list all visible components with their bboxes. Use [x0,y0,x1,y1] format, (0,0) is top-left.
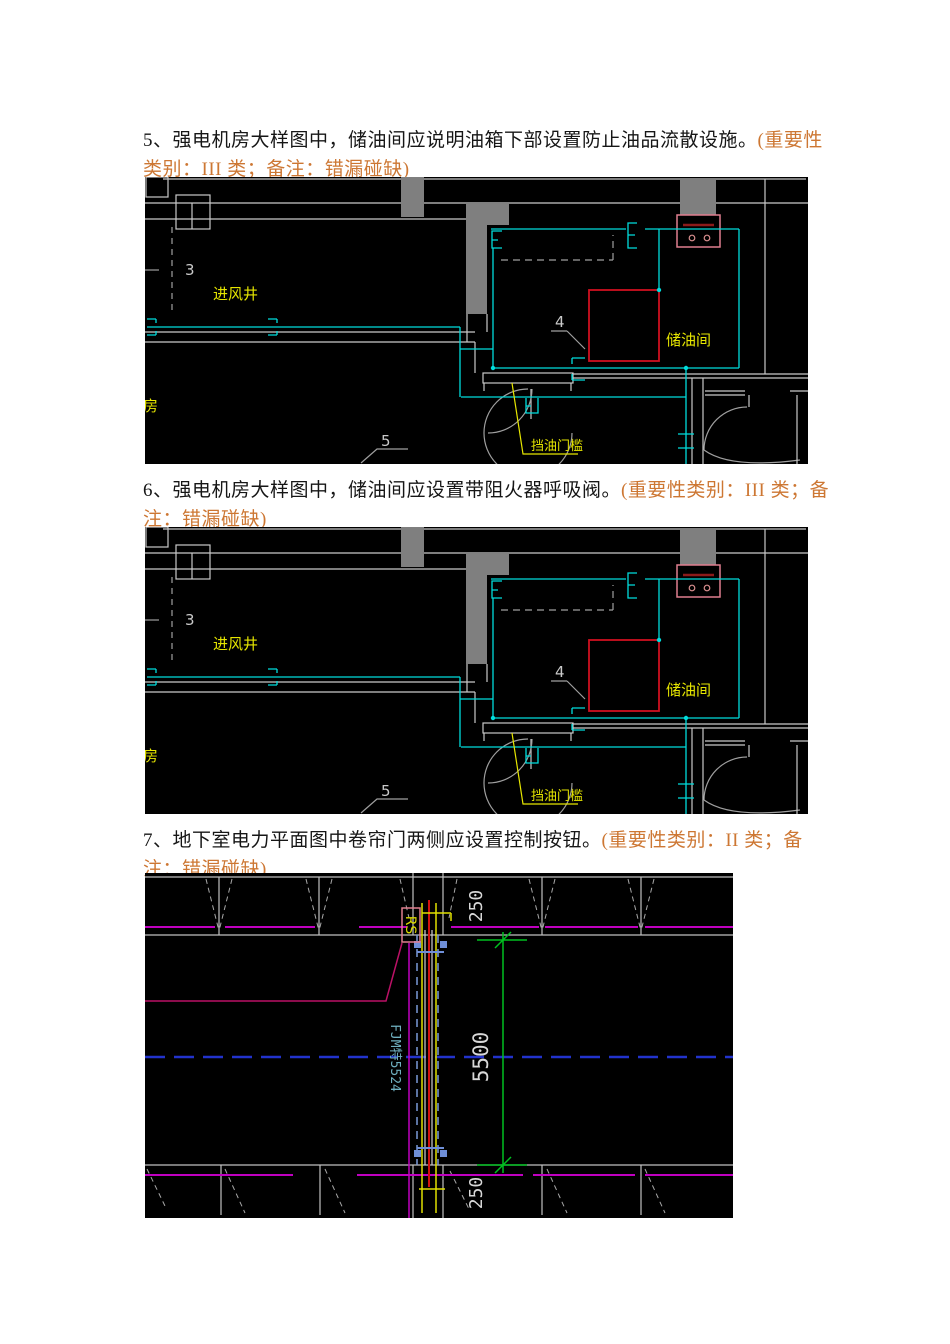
oil-room-label: 储油间 [666,681,711,699]
axis-number: 3 [185,611,195,629]
cad-drawing-storage-room-2: 进风井 机房 储油间 挡油门槛 3 4 5 [145,527,808,814]
issue-7-text: 7、地下室电力平面图中卷帘门两侧应设置控制按钮。 [143,830,602,851]
issue-item-5: 5、强电机房大样图中，储油间应说明油箱下部设置防止油品流散设施。(重要性类别：I… [143,126,837,184]
dim-5500: 5500 [469,1032,493,1083]
threshold-label: 挡油门槛 [531,789,583,804]
tank-tag: 4 [555,313,565,331]
issue-6-text: 6、强电机房大样图中，储油间应设置带阻火器呼吸阀。 [143,480,621,501]
shutter-tag-label: RS [402,916,418,935]
oil-room-label: 储油间 [666,331,711,349]
issue-item-6: 6、强电机房大样图中，储油间应设置带阻火器呼吸阀。(重要性类别：III 类；备注… [143,476,837,534]
dim-250-bottom: 250 [466,1177,487,1210]
detail-tag: 5 [381,782,391,800]
cad-drawing-storage-room-1: 进风井 机房 储油间 挡油门槛 3 4 5 [145,177,808,464]
threshold-label: 挡油门槛 [531,439,583,454]
fire-door-code-label: FJM特5524 [387,1024,402,1092]
issue-5-text: 5、强电机房大样图中，储油间应说明油箱下部设置防止油品流散设施。 [143,130,758,151]
cad-drawing-power-plan: RS FJM特5524 250 5500 250 [145,873,733,1218]
air-shaft-label: 进风井 [213,635,258,653]
cad-background [145,873,733,1218]
air-shaft-label: 进风井 [213,285,258,303]
dim-250-top: 250 [466,890,487,923]
machine-room-label: 机房 [145,397,158,415]
detail-tag: 5 [381,432,391,450]
axis-number: 3 [185,261,195,279]
machine-room-label: 机房 [145,747,158,765]
tank-tag: 4 [555,663,565,681]
